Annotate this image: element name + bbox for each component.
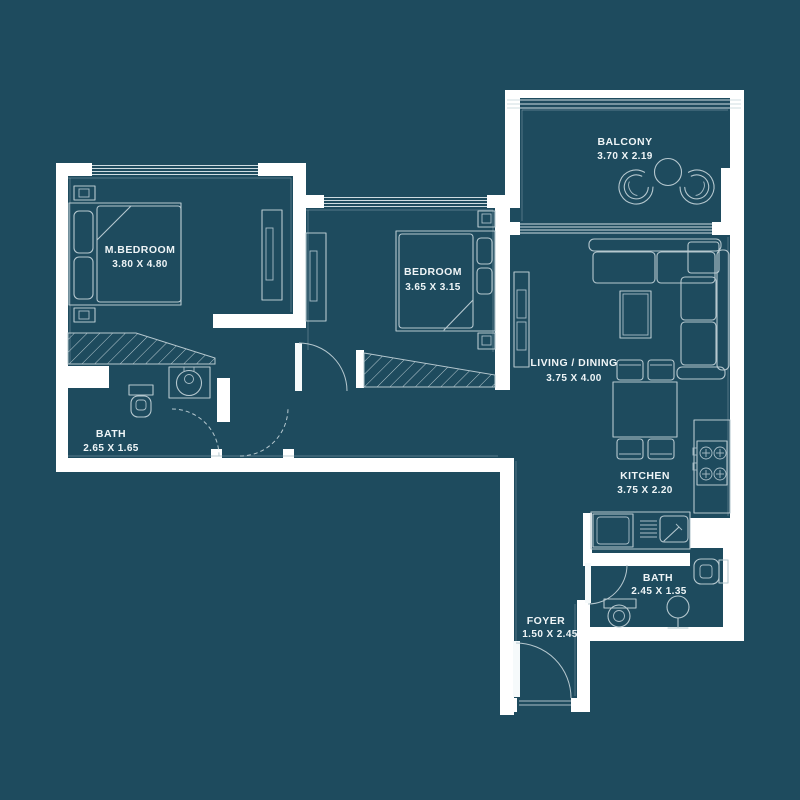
- guest-bath-door: [585, 563, 627, 604]
- room-label-bath-master: BATH 2.65 X 1.65: [83, 428, 139, 454]
- bedroom-nightstand-bottom-icon: [478, 333, 495, 349]
- dining-table-icon: [613, 360, 677, 459]
- svg-text:LIVING / DINING: LIVING / DINING: [530, 357, 617, 369]
- stove-icon: [693, 441, 727, 485]
- kitchen-sink-icon: [640, 516, 688, 542]
- bedroom-door: [295, 343, 347, 391]
- guest-bath-basin-icon: [667, 596, 689, 628]
- master-bath-sink-icon: [169, 367, 210, 398]
- entrance-door: [513, 641, 571, 705]
- svg-text:3.75 X 4.00: 3.75 X 4.00: [546, 373, 602, 384]
- svg-text:3.70 X 2.19: 3.70 X 2.19: [597, 151, 653, 162]
- svg-text:3.80 X 4.80: 3.80 X 4.80: [112, 259, 168, 270]
- closet-master-bedroom: [68, 333, 215, 364]
- floor-plan: M.BEDROOM 3.80 X 4.80 BEDROOM 3.65 X 3.1…: [0, 0, 800, 800]
- washer-icon: [593, 514, 633, 547]
- svg-text:2.45 X 1.35: 2.45 X 1.35: [631, 586, 687, 597]
- balcony-chair-left-icon: [613, 165, 657, 210]
- room-label-bath-guest: BATH 2.45 X 1.35: [631, 572, 687, 597]
- svg-text:M.BEDROOM: M.BEDROOM: [105, 244, 176, 256]
- window-master-bedroom: [92, 166, 258, 175]
- room-label-kitchen: KITCHEN 3.75 X 2.20: [617, 470, 673, 496]
- master-bath-toilet-icon: [129, 385, 153, 417]
- svg-text:BATH: BATH: [643, 572, 673, 584]
- hall-door-left: [172, 409, 219, 456]
- room-label-bedroom: BEDROOM 3.65 X 3.15: [404, 266, 462, 293]
- svg-text:BATH: BATH: [96, 428, 126, 440]
- master-nightstand-bottom-icon: [74, 308, 95, 322]
- room-label-master-bedroom: M.BEDROOM 3.80 X 4.80: [105, 244, 176, 270]
- walls: [56, 90, 744, 715]
- balcony-table-icon: [655, 159, 682, 186]
- closet-bedroom: [364, 353, 495, 387]
- balcony-chair-right-icon: [676, 165, 720, 210]
- balcony-railing: [507, 100, 741, 108]
- svg-text:1.50 X 2.45: 1.50 X 2.45: [522, 629, 578, 640]
- svg-text:3.65 X 3.15: 3.65 X 3.15: [405, 282, 461, 293]
- bedroom-wardrobe-icon: [306, 233, 326, 321]
- master-nightstand-top-icon: [74, 186, 95, 200]
- bedroom-nightstand-top-icon: [478, 211, 495, 227]
- master-wardrobe-icon: [262, 210, 282, 300]
- kitchen-counter-right-icon: [694, 420, 730, 513]
- room-label-living-dining: LIVING / DINING 3.75 X 4.00: [530, 357, 617, 384]
- svg-text:KITCHEN: KITCHEN: [620, 470, 670, 482]
- window-bedroom: [324, 198, 487, 207]
- bedroom-bed-icon: [396, 231, 495, 331]
- floor-plan-svg: M.BEDROOM 3.80 X 4.80 BEDROOM 3.65 X 3.1…: [0, 0, 800, 800]
- coffee-table-icon: [620, 291, 651, 338]
- svg-text:2.65 X 1.65: 2.65 X 1.65: [83, 443, 139, 454]
- svg-text:BALCONY: BALCONY: [597, 136, 652, 148]
- room-label-balcony: BALCONY 3.70 X 2.19: [597, 136, 653, 162]
- tv-unit-icon: [514, 272, 529, 367]
- svg-text:FOYER: FOYER: [527, 615, 565, 627]
- hall-door-right: [240, 408, 288, 456]
- svg-text:BEDROOM: BEDROOM: [404, 266, 462, 278]
- room-label-foyer: FOYER 1.50 X 2.45: [522, 615, 578, 640]
- svg-text:3.75 X 2.20: 3.75 X 2.20: [617, 485, 673, 496]
- guest-bath-cistern-icon: [694, 559, 728, 584]
- guest-bath-toilet-icon: [604, 599, 636, 627]
- window-balcony-living: [520, 224, 712, 233]
